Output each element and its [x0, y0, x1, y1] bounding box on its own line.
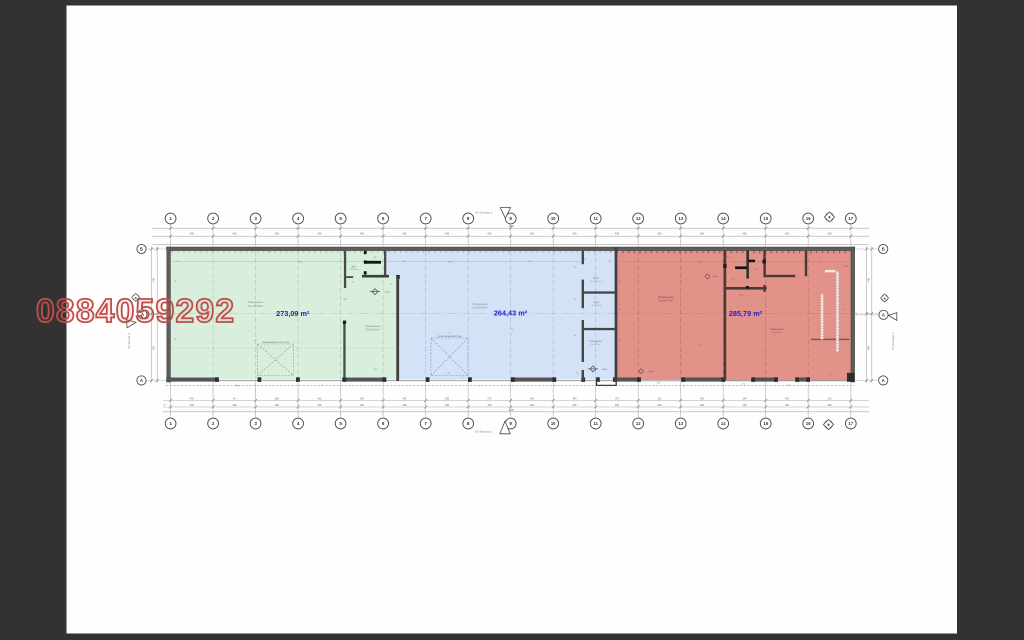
svg-text:13: 13 [678, 421, 683, 426]
svg-text:11: 11 [593, 216, 598, 221]
svg-text:8: 8 [467, 216, 470, 221]
svg-text:Офис: Офис [593, 277, 600, 280]
svg-text:4.5: 4.5 [819, 261, 822, 263]
svg-text:478: 478 [190, 398, 195, 401]
svg-text:16: 16 [806, 421, 811, 426]
svg-text:408: 408 [530, 232, 535, 235]
svg-text:408: 408 [190, 232, 195, 235]
svg-text:1: 1 [169, 421, 172, 426]
svg-text:6.48: 6.48 [509, 409, 514, 412]
svg-text:408: 408 [487, 232, 492, 235]
svg-text:Помещение: Помещение [248, 300, 264, 304]
svg-text:9: 9 [509, 216, 512, 221]
svg-text:7: 7 [424, 421, 427, 426]
svg-text:90: 90 [727, 257, 729, 259]
svg-text:408: 408 [275, 404, 280, 407]
svg-text:1.460: 1.460 [698, 261, 703, 263]
svg-text:408: 408 [785, 404, 790, 407]
svg-text:СЕКЦИОННА ВРАТА РОЛКА: СЕКЦИОННА ВРАТА РОЛКА [438, 335, 463, 338]
svg-text:8 9: 8 9 [479, 386, 482, 388]
svg-text:26: 26 [619, 281, 621, 283]
svg-text:408: 408 [402, 404, 407, 407]
svg-text:2: 2 [212, 421, 215, 426]
svg-text:90: 90 [574, 335, 576, 337]
svg-text:2: 2 [212, 216, 215, 221]
svg-text:8 9: 8 9 [237, 386, 240, 388]
svg-text:408: 408 [445, 232, 450, 235]
svg-text:120: 120 [657, 398, 662, 401]
svg-text:45: 45 [609, 252, 611, 254]
svg-text:408: 408 [317, 232, 322, 235]
svg-text:6.48: 6.48 [509, 225, 514, 228]
svg-text:90: 90 [352, 282, 354, 284]
svg-text:408: 408 [742, 404, 747, 407]
svg-text:1.460: 1.460 [448, 261, 453, 263]
svg-text:408: 408 [445, 404, 450, 407]
svg-text:406: 406 [317, 398, 322, 401]
svg-text:Помещение: Помещение [770, 328, 784, 331]
svg-text:406: 406 [402, 398, 407, 401]
svg-text:03 Фасада 3: 03 Фасада 3 [891, 332, 895, 350]
svg-text:04 Фасад 4: 04 Фасад 4 [127, 333, 131, 349]
svg-text:13: 13 [678, 216, 683, 221]
svg-text:10: 10 [551, 216, 556, 221]
svg-text:408: 408 [360, 232, 365, 235]
svg-text:26: 26 [174, 281, 176, 283]
svg-text:408: 408 [275, 232, 280, 235]
svg-text:9 2: 9 2 [254, 340, 257, 342]
svg-text:Офис: Офис [593, 301, 600, 304]
svg-text:3: 3 [254, 421, 257, 426]
svg-text:5: 5 [339, 216, 342, 221]
svg-text:370: 370 [487, 398, 492, 401]
svg-text:26: 26 [844, 309, 846, 311]
svg-text:242: 242 [608, 261, 611, 263]
svg-text:/За 49,81м²/: /За 49,81м²/ [366, 329, 380, 332]
svg-text:90: 90 [574, 299, 576, 301]
svg-text:±0.00: ±0.00 [385, 292, 391, 294]
svg-text:Б: Б [140, 247, 143, 252]
svg-text:24: 24 [606, 386, 608, 388]
svg-text:90: 90 [584, 259, 586, 261]
svg-text:408: 408 [657, 232, 662, 235]
svg-text:+0.00: +0.00 [648, 371, 654, 373]
svg-text:408: 408 [700, 232, 705, 235]
svg-text:24: 24 [177, 261, 179, 263]
svg-text:398: 398 [445, 398, 450, 401]
svg-text:02 Фасада 2: 02 Фасада 2 [475, 210, 493, 214]
svg-text:394: 394 [742, 398, 747, 401]
svg-text:1.82: 1.82 [731, 279, 735, 281]
svg-text:408: 408 [572, 404, 577, 407]
svg-text:400: 400 [153, 345, 156, 350]
svg-text:408: 408 [572, 232, 577, 235]
svg-text:8: 8 [467, 421, 470, 426]
svg-text:Б: Б [882, 247, 885, 252]
svg-text:400: 400 [867, 277, 870, 282]
svg-text:394: 394 [572, 398, 577, 401]
svg-text:8 9: 8 9 [683, 386, 686, 388]
svg-text:14: 14 [721, 216, 726, 221]
svg-text:Помещение: Помещение [365, 324, 381, 328]
svg-text:/За 35,85м²/: /За 35,85м²/ [590, 343, 601, 346]
svg-text:16: 16 [806, 216, 811, 221]
svg-text:26: 26 [174, 339, 176, 341]
svg-text:4: 4 [297, 421, 300, 426]
svg-text:+0.00: +0.00 [843, 266, 849, 268]
svg-text:1.96: 1.96 [698, 345, 702, 347]
svg-text:15: 15 [763, 421, 768, 426]
svg-text:45: 45 [789, 252, 791, 254]
svg-text:408: 408 [785, 232, 790, 235]
svg-text:148: 148 [267, 252, 270, 254]
svg-text:26: 26 [619, 309, 621, 311]
svg-text:/За 264,43м²/: /За 264,43м²/ [472, 306, 487, 309]
svg-text:ПЛ.: ПЛ. [163, 405, 167, 407]
svg-text:400: 400 [153, 277, 156, 282]
svg-text:408: 408 [615, 404, 620, 407]
svg-text:/За 14,52 м²/: /За 14,52 м²/ [591, 304, 602, 307]
svg-text:+0.00: +0.00 [712, 276, 718, 278]
svg-text:/За 285,79м²/: /За 285,79м²/ [658, 300, 673, 303]
svg-text:394: 394 [360, 398, 365, 401]
svg-text:408: 408 [742, 232, 747, 235]
svg-text:ГАРАЖНА ВРАТА СЕКЦ.РОЛКА: ГАРАЖНА ВРАТА СЕКЦ.РОЛКА [262, 341, 289, 344]
svg-text:0884059292: 0884059292 [36, 293, 235, 330]
svg-text:408: 408 [487, 404, 492, 407]
svg-text:1.148: 1.148 [298, 261, 303, 263]
svg-text:12: 12 [636, 216, 641, 221]
svg-text:370: 370 [615, 398, 620, 401]
svg-text:408: 408 [657, 404, 662, 407]
svg-text:Помещение: Помещение [589, 340, 603, 343]
svg-text:388: 388 [275, 398, 280, 401]
svg-text:406: 406 [530, 398, 535, 401]
svg-text:/За 273,09м²/: /За 273,09м²/ [248, 305, 263, 308]
svg-text:408: 408 [232, 404, 237, 407]
svg-text:264,43 m²: 264,43 m² [494, 309, 528, 318]
svg-text:5: 5 [339, 421, 342, 426]
svg-text:586: 586 [351, 267, 354, 269]
svg-text:408: 408 [402, 232, 407, 235]
svg-text:408: 408 [530, 404, 535, 407]
svg-text:478: 478 [373, 369, 376, 371]
svg-text:x с: x с [554, 385, 556, 387]
svg-text:6: 6 [382, 216, 385, 221]
svg-text:273,09 m²: 273,09 m² [276, 309, 310, 318]
svg-text:/За 28,57м²/: /За 28,57м²/ [772, 331, 783, 334]
svg-text:15: 15 [763, 216, 768, 221]
svg-text:408: 408 [360, 404, 365, 407]
svg-text:01 Фасада 1: 01 Фасада 1 [475, 429, 493, 433]
svg-text:10: 10 [551, 421, 556, 426]
svg-text:408: 408 [828, 404, 833, 407]
svg-text:408: 408 [828, 232, 833, 235]
svg-text:408: 408 [700, 404, 705, 407]
svg-text:285,79 m²: 285,79 m² [729, 309, 763, 318]
svg-text:406: 406 [700, 398, 705, 401]
svg-text:17: 17 [848, 421, 853, 426]
svg-text:408: 408 [190, 404, 195, 407]
svg-text:120: 120 [828, 398, 833, 401]
svg-text:4: 4 [297, 216, 300, 221]
svg-text:408: 408 [232, 232, 237, 235]
svg-text:586: 586 [343, 299, 346, 301]
svg-text:2.40: 2.40 [739, 295, 743, 297]
svg-text:242: 242 [528, 261, 531, 263]
svg-text:1.90: 1.90 [754, 269, 758, 271]
svg-text:180: 180 [573, 267, 576, 269]
svg-text:/За 15,05 м²/: /За 15,05 м²/ [591, 280, 602, 283]
svg-text:9: 9 [509, 421, 512, 426]
svg-text:6: 6 [382, 421, 385, 426]
svg-text:3: 3 [254, 216, 257, 221]
svg-text:26: 26 [619, 339, 621, 341]
svg-text:400: 400 [867, 345, 870, 350]
svg-text:12: 12 [636, 421, 641, 426]
svg-text:17: 17 [848, 216, 853, 221]
svg-text:780: 780 [374, 257, 377, 259]
svg-text:90: 90 [511, 329, 513, 331]
svg-text:Помещение: Помещение [658, 295, 674, 299]
svg-text:±0.00: ±0.00 [602, 369, 608, 371]
svg-text:242: 242 [402, 261, 405, 263]
svg-text:Помещение: Помещение [472, 302, 488, 306]
svg-text:45: 45 [390, 284, 392, 286]
svg-text:9 2: 9 2 [448, 333, 451, 335]
svg-text:11: 11 [593, 421, 598, 426]
svg-text:1: 1 [169, 216, 172, 221]
svg-text:14: 14 [721, 421, 726, 426]
svg-text:406: 406 [785, 398, 790, 401]
svg-text:7: 7 [424, 216, 427, 221]
svg-text:408: 408 [317, 404, 322, 407]
svg-text:408: 408 [615, 232, 620, 235]
